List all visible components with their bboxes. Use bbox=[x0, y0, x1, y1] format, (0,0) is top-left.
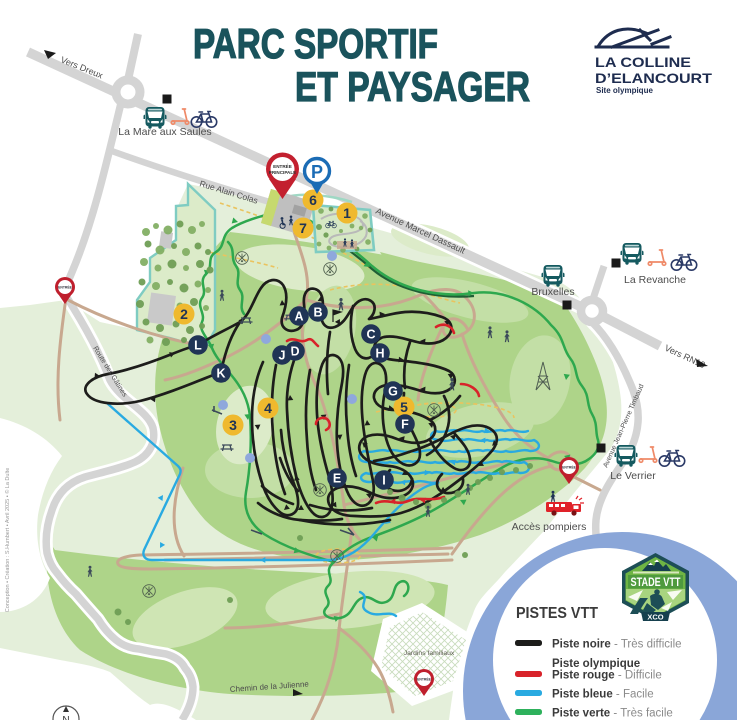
svg-text:2: 2 bbox=[180, 306, 188, 322]
svg-text:7: 7 bbox=[299, 220, 307, 236]
svg-text:G: G bbox=[388, 384, 398, 398]
svg-text:6: 6 bbox=[309, 192, 317, 208]
svg-text:D: D bbox=[290, 344, 299, 358]
svg-text:ENTRÉE: ENTRÉE bbox=[417, 676, 431, 681]
svg-text:Accès pompiers: Accès pompiers bbox=[512, 521, 587, 533]
svg-text:4: 4 bbox=[264, 400, 272, 416]
svg-text:PARC SPORTIF: PARC SPORTIF bbox=[193, 20, 438, 67]
svg-text:Bruxelles: Bruxelles bbox=[531, 286, 574, 298]
svg-text:Piste verte - Très facile: Piste verte - Très facile bbox=[552, 708, 673, 720]
svg-text:Piste rouge - Difficile: Piste rouge - Difficile bbox=[552, 670, 662, 682]
svg-text:XCO: XCO bbox=[647, 613, 663, 622]
svg-text:PRINCIPALE: PRINCIPALE bbox=[269, 170, 296, 175]
svg-text:Site olympique: Site olympique bbox=[596, 86, 653, 95]
svg-text:D’ELANCOURT: D’ELANCOURT bbox=[595, 70, 713, 86]
svg-text:P: P bbox=[311, 162, 323, 182]
svg-text:La Mare aux Saules: La Mare aux Saules bbox=[118, 126, 211, 138]
svg-text:A: A bbox=[294, 309, 303, 323]
svg-text:ET PAYSAGER: ET PAYSAGER bbox=[295, 63, 530, 110]
svg-text:Piste olympique: Piste olympique bbox=[552, 658, 640, 670]
svg-text:PISTES VTT: PISTES VTT bbox=[516, 605, 598, 622]
svg-text:STADE VTT: STADE VTT bbox=[631, 577, 681, 589]
svg-text:1: 1 bbox=[343, 205, 351, 221]
svg-text:Conception • Création : S.Humb: Conception • Création : S.Humbert • Avri… bbox=[4, 468, 11, 613]
svg-text:I: I bbox=[382, 473, 385, 487]
svg-text:ENTRÉE: ENTRÉE bbox=[273, 162, 292, 169]
svg-text:ENTRÉE: ENTRÉE bbox=[58, 284, 72, 289]
svg-text:J: J bbox=[279, 348, 286, 362]
svg-text:Piste noire - Très difficile: Piste noire - Très difficile bbox=[552, 639, 682, 651]
svg-text:5: 5 bbox=[400, 399, 408, 415]
svg-text:L: L bbox=[194, 338, 202, 352]
svg-text:F: F bbox=[401, 417, 409, 431]
svg-text:La Revanche: La Revanche bbox=[624, 274, 686, 286]
svg-text:Jardins familiaux: Jardins familiaux bbox=[404, 650, 455, 657]
svg-text:Le Verrier: Le Verrier bbox=[610, 470, 656, 482]
svg-text:B: B bbox=[313, 305, 322, 319]
svg-text:H: H bbox=[375, 346, 384, 360]
svg-text:C: C bbox=[366, 327, 375, 341]
svg-text:K: K bbox=[216, 366, 225, 380]
svg-text:E: E bbox=[333, 471, 341, 485]
svg-text:N: N bbox=[62, 715, 69, 720]
svg-text:Piste bleue - Facile: Piste bleue - Facile bbox=[552, 689, 654, 701]
svg-text:3: 3 bbox=[229, 417, 237, 433]
svg-text:LA COLLINE: LA COLLINE bbox=[595, 54, 691, 70]
svg-text:ENTRÉE: ENTRÉE bbox=[562, 464, 576, 469]
